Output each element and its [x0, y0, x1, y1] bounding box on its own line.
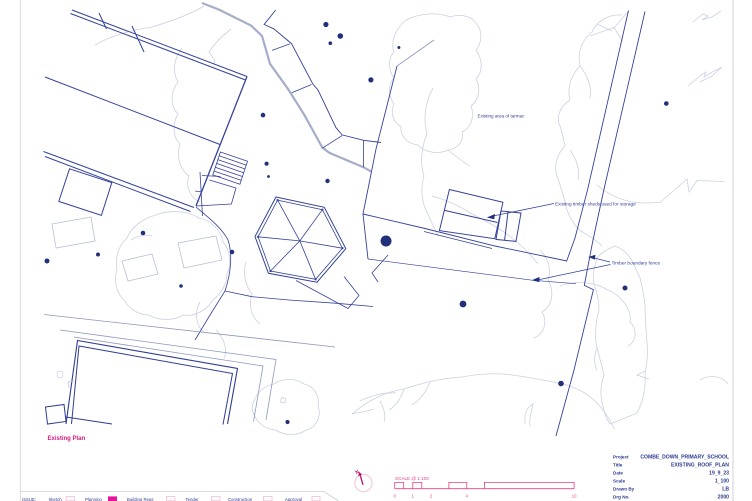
svg-text:1: 1	[412, 494, 415, 499]
svg-text:Project: Project	[613, 454, 629, 459]
svg-text:LB: LB	[722, 486, 729, 492]
svg-text:Existing area of tarmac: Existing area of tarmac	[478, 114, 526, 119]
svg-text:Drg No.: Drg No.	[613, 494, 630, 499]
svg-text:Sketch: Sketch	[49, 497, 63, 501]
svg-text:0: 0	[394, 494, 397, 499]
svg-text:19_9_23: 19_9_23	[709, 470, 729, 476]
svg-text:SCALE @ 1:100: SCALE @ 1:100	[395, 476, 429, 481]
svg-text:Drawn By: Drawn By	[613, 486, 635, 491]
svg-text:1_100: 1_100	[715, 478, 729, 484]
svg-text:Approval: Approval	[285, 497, 302, 501]
svg-text:Building Regs: Building Regs	[127, 497, 154, 501]
svg-text:Existing timber sheds used for: Existing timber sheds used for storage	[555, 202, 636, 208]
svg-text:2000: 2000	[718, 494, 729, 500]
svg-text:Date: Date	[613, 470, 623, 475]
svg-text:Existing Plan: Existing Plan	[48, 436, 86, 442]
svg-text:Scale: Scale	[613, 478, 625, 483]
svg-text:Planning: Planning	[85, 497, 102, 501]
svg-text:Timber boundary fence: Timber boundary fence	[612, 261, 661, 267]
svg-text:Title: Title	[613, 462, 623, 467]
svg-text:ISSUE:: ISSUE:	[22, 497, 36, 501]
svg-text:Construction: Construction	[228, 497, 253, 501]
svg-text:Tender: Tender	[186, 497, 200, 501]
svg-text:2: 2	[430, 494, 433, 499]
svg-text:EXISTING_ROOF_PLAN: EXISTING_ROOF_PLAN	[671, 462, 729, 468]
svg-text:4: 4	[466, 494, 469, 499]
svg-text:10: 10	[572, 494, 577, 499]
svg-text:COMBE_DOWN_PRIMARY_SCHOOL: COMBE_DOWN_PRIMARY_SCHOOL	[640, 454, 729, 460]
